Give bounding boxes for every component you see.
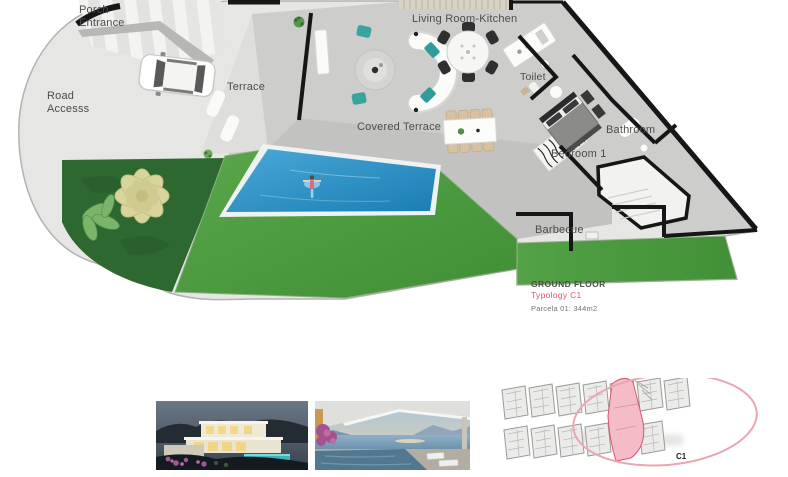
label-terrace: Terrace xyxy=(227,81,265,94)
roof-band xyxy=(399,0,513,10)
coffee-table xyxy=(372,67,378,73)
legend-floor-name: GROUND FLOOR xyxy=(531,279,606,289)
label-porch-entrance: Porch Entrance xyxy=(79,4,137,30)
side-table xyxy=(550,86,563,99)
label-barbecue: Barbecue xyxy=(535,224,584,237)
label-toilet: Toilet xyxy=(520,71,546,84)
barbecue-unit xyxy=(586,232,598,239)
label-living-room-kitchen: Living Room-Kitchen xyxy=(412,13,517,26)
flower xyxy=(114,168,169,223)
site-plan-row-1 xyxy=(502,378,690,419)
label-bedroom-1: Bedroom 1 xyxy=(551,148,607,161)
label-bathroom: Bathroom xyxy=(606,124,655,137)
floor-plan-page: Porch Entrance Living Room-Kitchen Road … xyxy=(0,0,788,477)
site-plan xyxy=(500,378,788,477)
photo-thumbnail-terrace-sea-view xyxy=(315,401,470,470)
plan-legend: GROUND FLOOR Typology C1 Parcela 01: 344… xyxy=(531,279,606,313)
terrace-plant xyxy=(204,150,213,159)
label-covered-terrace: Covered Terrace xyxy=(357,121,441,134)
photo-thumbnail-villa-dusk xyxy=(156,401,308,470)
lawn-right xyxy=(517,236,737,285)
label-road-access: Road Accesss xyxy=(47,90,101,116)
site-plan-unit-label: C1 xyxy=(676,452,686,461)
legend-parcel-size: Parcela 01: 344m2 xyxy=(531,304,606,313)
legend-typology: Typology C1 xyxy=(531,290,606,300)
floor-plan-drawing xyxy=(0,0,788,345)
outdoor-dining-set xyxy=(443,109,497,154)
